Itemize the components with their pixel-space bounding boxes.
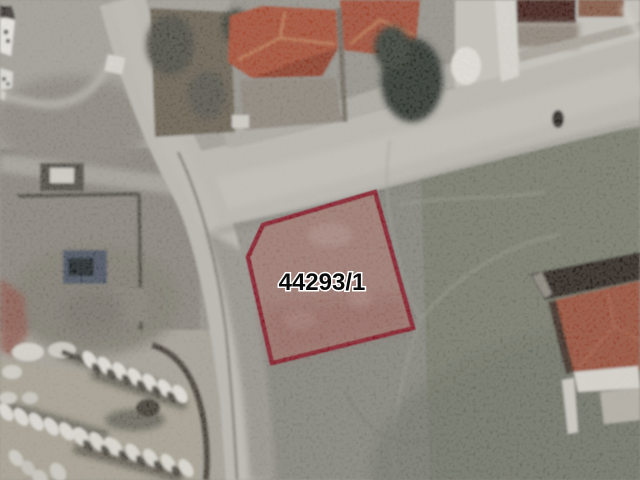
- svg-text:44293/1: 44293/1: [279, 269, 366, 296]
